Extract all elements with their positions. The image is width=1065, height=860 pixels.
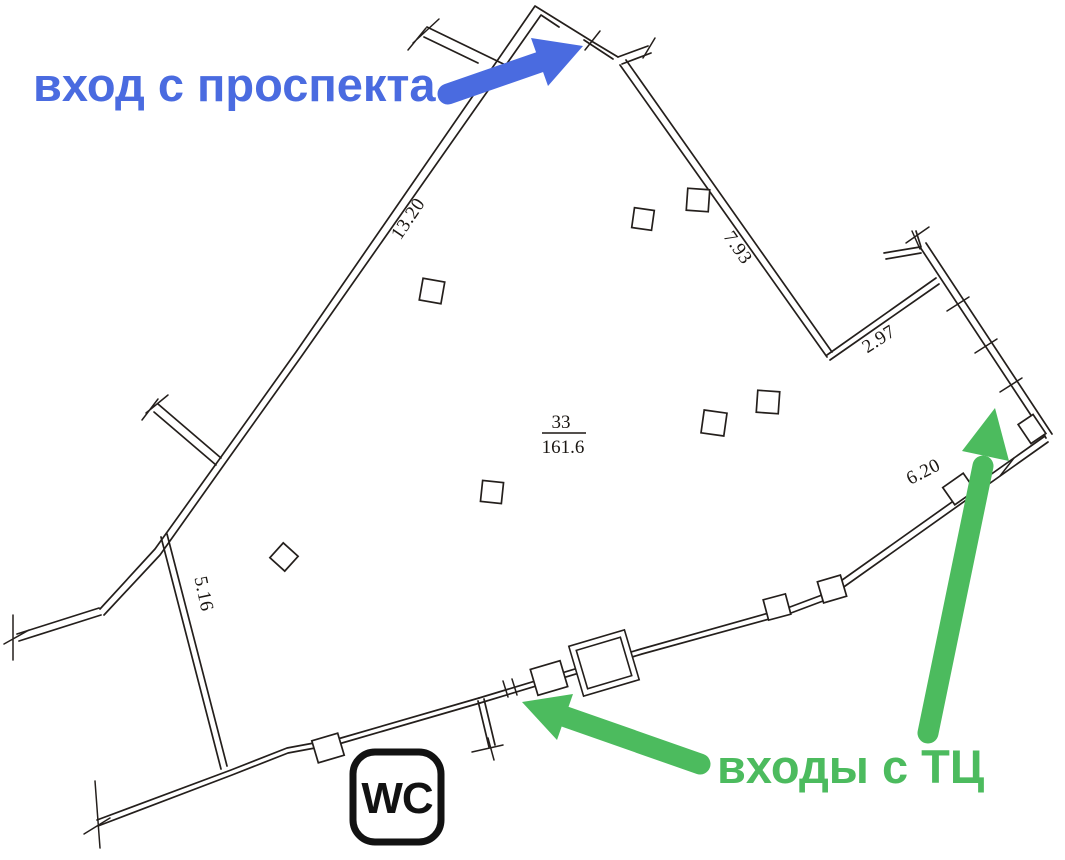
dimension-label-5-16: 5.16 (189, 574, 217, 613)
dimension-label-2-97: 2.97 (859, 321, 900, 358)
room-area: 161.6 (542, 437, 585, 458)
dimension-label-13-20: 13.20 (387, 194, 430, 243)
wall-right (920, 243, 1052, 438)
break-tick (4, 615, 29, 660)
mall-entrance-arrow-bottom-shaft (566, 717, 700, 764)
wall-793 (620, 60, 832, 357)
door-block (312, 733, 344, 763)
mall-entrance-arrow-right-shaft (928, 466, 983, 733)
room-number: 33 (552, 412, 571, 433)
dimension-label-6-20: 6.20 (903, 455, 944, 490)
break-tick (84, 781, 110, 848)
wall-stub-top-right (884, 231, 921, 259)
column-marker (419, 278, 444, 303)
dimension-labels: 13.20 7.93 2.97 6.20 5.16 (189, 194, 944, 613)
annotated-floor-plan: 13.20 7.93 2.97 6.20 5.16 33 161.6 WC вх… (0, 0, 1065, 860)
mall-entrances-label: входы с ТЦ (717, 740, 984, 793)
avenue-entrance-label: вход с проспекта (33, 58, 436, 111)
column-marker (701, 410, 727, 436)
avenue-entrance-arrow-shaft (448, 61, 543, 94)
wall-lines (4, 6, 1052, 848)
wc-badge: WC (353, 752, 441, 842)
wall-top-inner-right (584, 40, 613, 59)
door-block (530, 661, 567, 696)
wall-stub-apex-right (618, 46, 651, 64)
break-tick (408, 19, 439, 50)
column-marker (756, 390, 779, 413)
door-block (817, 575, 846, 603)
dimension-label-7-93: 7.93 (719, 227, 756, 268)
wall-516 (161, 534, 227, 769)
wall-stub-left-bottom (17, 608, 101, 641)
column-marker (686, 188, 709, 211)
wall-stub-left-middle (154, 404, 221, 465)
avenue-entrance-annotation: вход с проспекта (33, 38, 583, 111)
wall-stub-bottom-junction (478, 699, 495, 747)
break-tick (585, 31, 600, 50)
door-block (763, 594, 791, 620)
column-marker (480, 480, 503, 503)
column-markers (270, 188, 780, 571)
wc-badge-label: WC (361, 774, 433, 823)
break-tick (142, 395, 168, 420)
column-marker (270, 543, 298, 571)
room-label: 33 161.6 (542, 412, 586, 458)
floor-plan-svg: 13.20 7.93 2.97 6.20 5.16 33 161.6 WC вх… (0, 0, 1065, 860)
mall-entrance-arrowhead-right-icon (962, 408, 1009, 461)
column-marker (632, 208, 655, 231)
